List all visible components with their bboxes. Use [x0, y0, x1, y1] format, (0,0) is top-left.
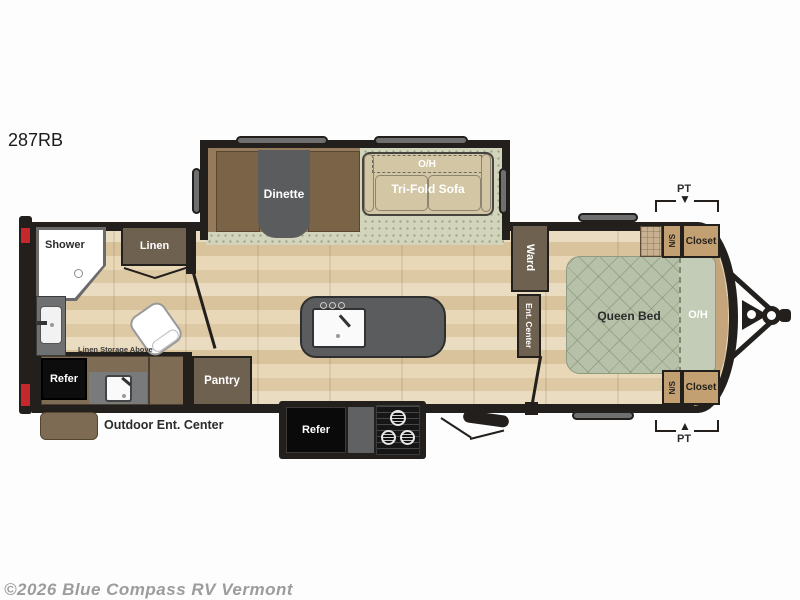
hitch-jack-icon — [747, 310, 756, 319]
model-title: 287RB — [8, 130, 63, 151]
outdoor-counter — [348, 407, 374, 453]
shower-drain-icon — [74, 269, 83, 278]
wardrobe: Ward — [511, 224, 549, 292]
bed-oh-label: O/H — [688, 309, 708, 321]
pantry: Pantry — [192, 356, 252, 406]
refer-label: Refer — [50, 373, 78, 385]
dinette-bench-left — [216, 151, 260, 232]
pt-bottom-label: PT — [677, 433, 691, 445]
island-knob-icon — [320, 302, 327, 309]
island-faucet-icon — [339, 314, 351, 327]
outdoor-kitchen-module: Refer — [279, 401, 426, 459]
closet-bottom-label: Closet — [686, 382, 717, 393]
outdoor-ent-label: Outdoor Ent. Center — [104, 418, 223, 432]
queen-bed: O/H Queen Bed — [566, 256, 716, 374]
island-sink — [312, 308, 366, 348]
linen-storage-note: Linen Storage Above — [78, 345, 153, 354]
dinette-table: Dinette — [258, 150, 310, 238]
tail-light-bottom-icon — [21, 384, 30, 406]
island-knob-icon — [338, 302, 345, 309]
linen-closet: Linen — [121, 226, 188, 266]
island-knob-icon — [329, 302, 336, 309]
bedroom-window-top — [578, 213, 638, 222]
night-stand-bottom: N/S — [662, 370, 682, 405]
kitchen-cabinet — [148, 357, 186, 404]
dinette-bench-right — [308, 151, 360, 232]
bathroom-faucet-icon — [37, 321, 47, 325]
island-drain-icon — [336, 334, 340, 338]
ent-center-label: Ent. Center — [524, 303, 534, 348]
floorplan-canvas: 287RB Dinette O/H Tri-Fold Sofa — [0, 0, 800, 600]
tail-light-top-icon — [21, 228, 30, 243]
tri-fold-sofa: O/H Tri-Fold Sofa — [362, 152, 494, 216]
entertainment-center: Ent. Center — [517, 294, 541, 358]
kitchen-drain-icon — [122, 394, 126, 398]
ns-bottom-label: N/S — [668, 381, 677, 394]
sofa-oh-label: O/H — [418, 159, 436, 170]
stove-burner-icon — [381, 430, 396, 445]
pt-marker-bottom: ▲ PT — [650, 420, 724, 454]
pt-arrow-up-icon: ▲ — [676, 419, 694, 433]
dinette-label: Dinette — [264, 187, 305, 201]
slideout-window-top-right — [374, 136, 468, 145]
bathroom-drain-icon — [50, 323, 54, 327]
pt-marker-top: PT ▼ — [650, 183, 724, 215]
kitchen-sink — [105, 375, 132, 402]
slideout-window-left — [192, 168, 201, 214]
ns-top-label: N/S — [668, 234, 677, 247]
bed-overhead-cabinet: O/H — [679, 257, 715, 373]
slideout-window-right — [499, 168, 508, 214]
outdoor-ent-compartment — [40, 412, 98, 440]
slideout-window-top-left — [236, 136, 328, 145]
outdoor-refer-label: Refer — [302, 424, 330, 436]
stove-burner-icon — [390, 410, 406, 426]
linen-label: Linen — [140, 240, 169, 252]
pantry-label: Pantry — [204, 375, 240, 387]
stove-burner-icon — [400, 430, 415, 445]
outdoor-stove — [376, 405, 420, 455]
bedroom-window-bottom — [572, 411, 634, 420]
sofa-label: Tri-Fold Sofa — [364, 182, 492, 196]
watermark: ©2026 Blue Compass RV Vermont — [4, 580, 293, 600]
kitchen-faucet-icon — [121, 377, 131, 386]
kitchen-island — [300, 296, 446, 358]
outdoor-refrigerator: Refer — [286, 407, 346, 453]
bedside-cabinet — [640, 226, 662, 257]
night-stand-top: N/S — [662, 224, 682, 258]
pt-arrow-down-icon: ▼ — [676, 192, 694, 206]
closet-top: Closet — [682, 224, 720, 258]
closet-bottom: Closet — [682, 370, 720, 405]
closet-top-label: Closet — [686, 236, 717, 247]
sofa-overhead-cabinet: O/H — [372, 155, 482, 173]
pantry-wall — [183, 352, 192, 410]
entry-door-swing-line — [470, 430, 504, 440]
dinette-sofa-slideout: Dinette O/H Tri-Fold Sofa — [200, 140, 510, 240]
ward-label: Ward — [524, 244, 536, 271]
shower-label: Shower — [45, 239, 85, 251]
refrigerator: Refer — [41, 358, 87, 400]
queen-bed-label: Queen Bed — [579, 309, 679, 323]
hitch-ball-icon — [779, 309, 791, 322]
bathroom-vanity — [36, 296, 66, 356]
